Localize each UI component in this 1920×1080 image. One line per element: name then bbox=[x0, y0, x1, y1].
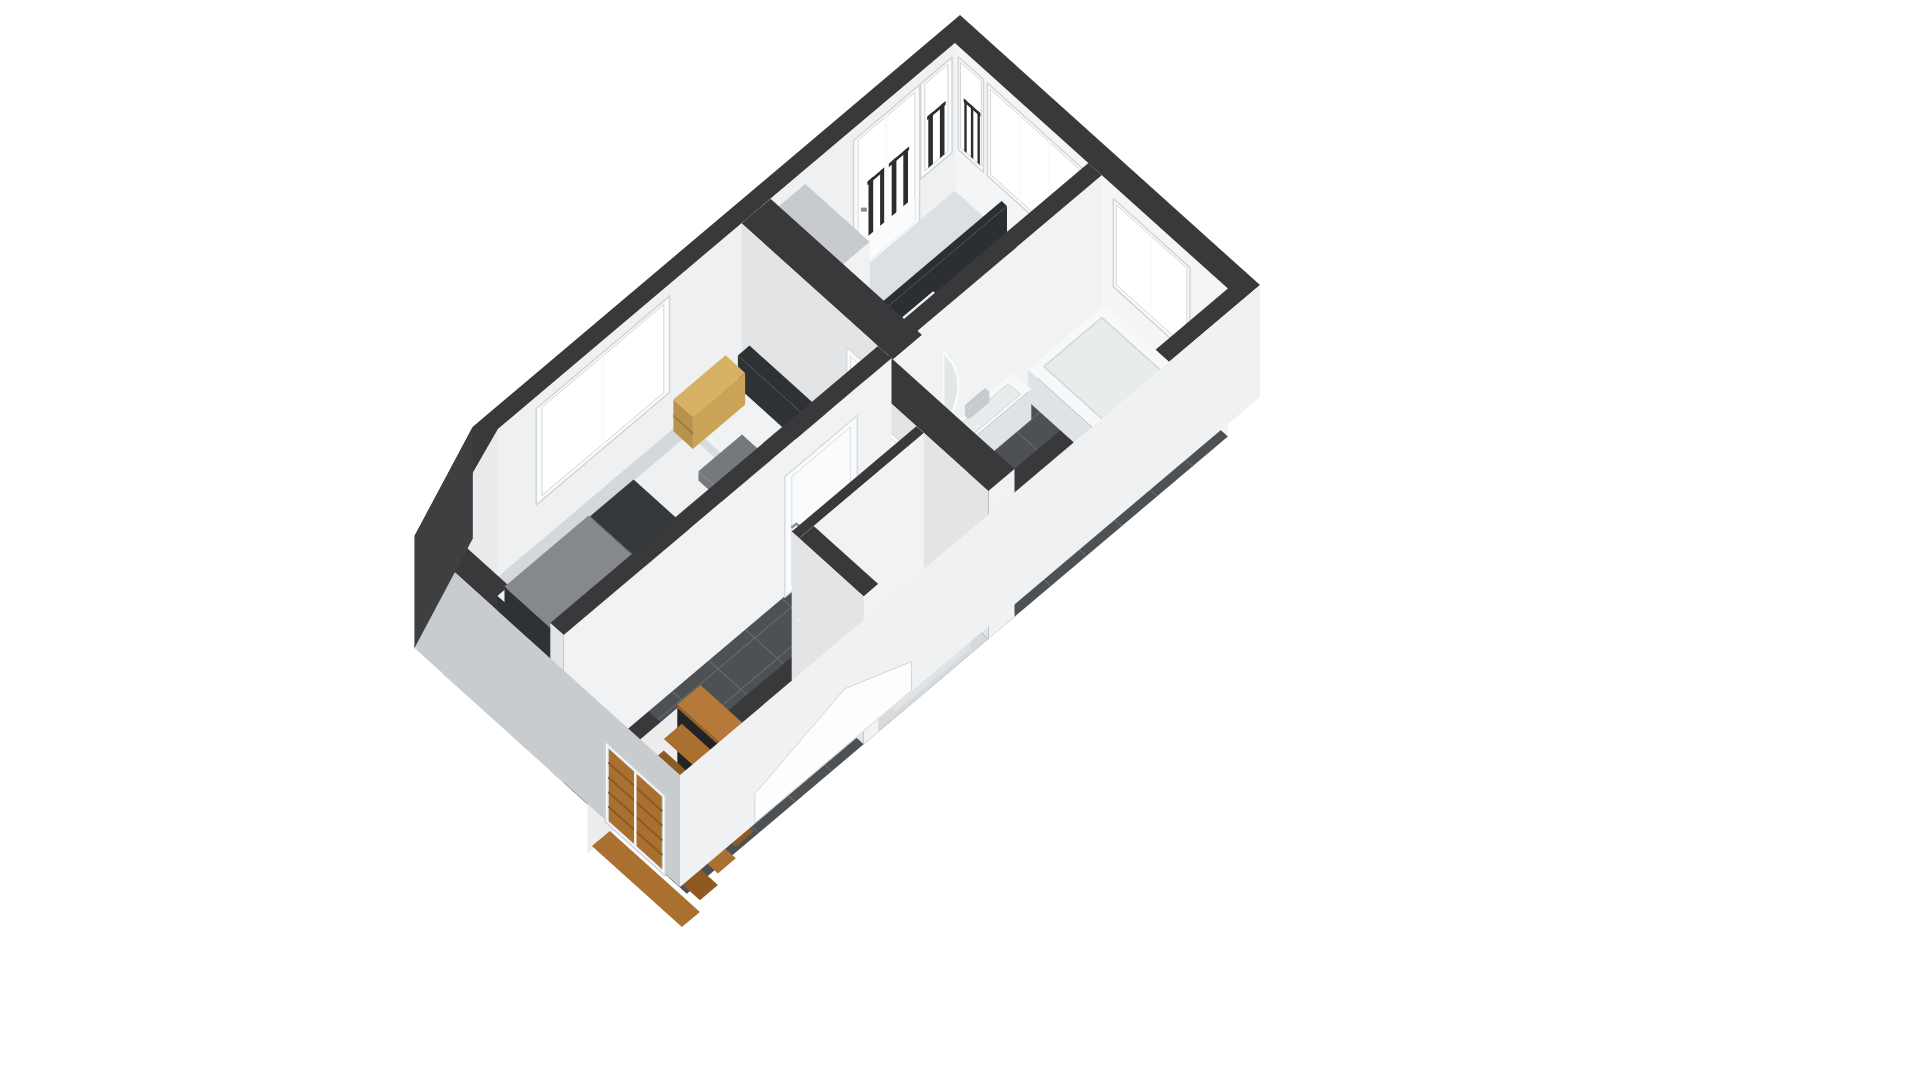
wc-north-wall-side-sw bbox=[792, 532, 800, 687]
balcony-sidelight-window-railing-bar bbox=[940, 102, 945, 158]
balcony-door-railing-bar bbox=[869, 177, 874, 236]
master-window-mullion bbox=[601, 354, 606, 446]
bedroom2-window-narrow-railing-bar bbox=[978, 111, 980, 165]
balcony-door-handle-icon bbox=[861, 208, 867, 212]
balcony-door-railing-bar bbox=[892, 157, 897, 216]
bedroom2-window-narrow-railing-bar bbox=[964, 99, 966, 153]
balcony-door-railing-bar bbox=[903, 147, 908, 206]
balcony-door-railing-bar bbox=[880, 167, 885, 226]
bathroom-window-mullion bbox=[1150, 235, 1152, 317]
floor-plan-page: { "title": "3d-floor-plan-render", "colo… bbox=[0, 0, 1920, 1080]
bedroom2-window-narrow-railing-bar bbox=[971, 105, 973, 159]
stairwell-window-mullion bbox=[634, 771, 636, 846]
floor-plan-scene bbox=[414, 15, 1260, 927]
floor-plan-canvas bbox=[0, 0, 1920, 1080]
bedroom2-window-wide-mullion bbox=[1019, 115, 1021, 203]
balcony-sidelight-window-railing-bar bbox=[928, 112, 933, 168]
floor-plan-3d-render bbox=[0, 0, 1920, 1080]
